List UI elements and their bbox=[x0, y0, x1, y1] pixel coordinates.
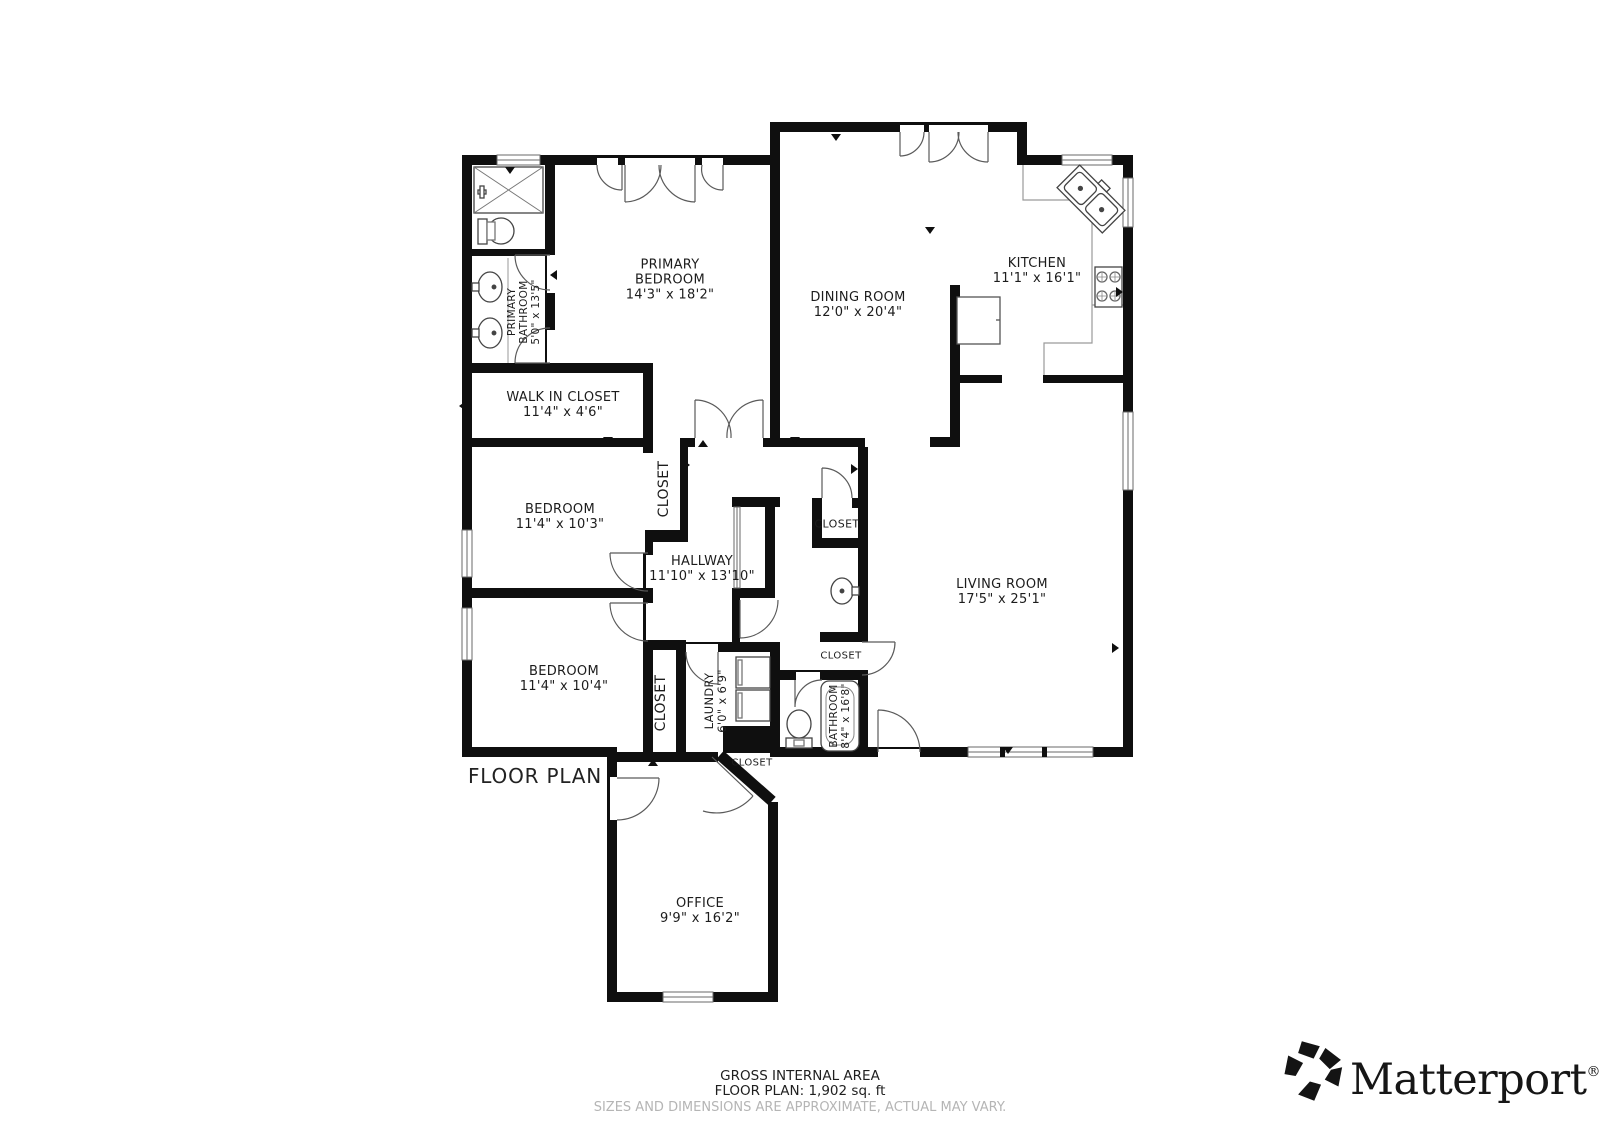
solid-block bbox=[723, 726, 772, 753]
room-dims: 11'1" x 16'1" bbox=[993, 271, 1082, 286]
double-vanity-icon bbox=[472, 258, 508, 363]
page-title: FLOOR PLAN bbox=[468, 764, 602, 788]
closet-label: CLOSET bbox=[656, 461, 672, 518]
room-dims: 14'3" x 18'2" bbox=[626, 288, 715, 303]
room-dims: 12'0" x 20'4" bbox=[810, 305, 905, 320]
window bbox=[462, 608, 472, 660]
floor-plan-area-value: FLOOR PLAN: 1,902 sq. ft bbox=[500, 1084, 1100, 1099]
window bbox=[663, 992, 713, 1002]
footer: GROSS INTERNAL AREA FLOOR PLAN: 1,902 sq… bbox=[500, 1069, 1100, 1115]
room-label-hallway: HALLWAY 11'10" x 13'10" bbox=[649, 554, 755, 584]
toilet-icon bbox=[786, 710, 812, 748]
closet-label: CLOSET bbox=[820, 651, 861, 662]
room-label-bedroom-1: BEDROOM 11'4" x 10'3" bbox=[516, 502, 605, 532]
room-dims: 11'4" x 4'6" bbox=[506, 405, 619, 420]
room-label-living-room: LIVING ROOM 17'5" x 25'1" bbox=[956, 577, 1048, 607]
closet-label: CLOSET bbox=[731, 758, 772, 769]
room-dims: 11'4" x 10'4" bbox=[520, 679, 609, 694]
window bbox=[1062, 155, 1112, 165]
room-dims: 9'9" x 16'2" bbox=[660, 911, 740, 926]
registered-mark: ® bbox=[1586, 1064, 1600, 1080]
disclaimer-text: SIZES AND DIMENSIONS ARE APPROXIMATE, AC… bbox=[500, 1100, 1100, 1115]
room-label-dining-room: DINING ROOM 12'0" x 20'4" bbox=[810, 290, 905, 320]
room-name: DINING ROOM bbox=[810, 290, 905, 305]
room-dims: 17'5" x 25'1" bbox=[956, 592, 1048, 607]
floor-plan-drawing bbox=[0, 0, 1600, 1132]
room-label-primary-bathroom: PRIMARY BATHROOM 5'0" x 13'5" bbox=[506, 279, 542, 344]
room-label-office: OFFICE 9'9" x 16'2" bbox=[660, 896, 740, 926]
room-name: BEDROOM bbox=[626, 273, 715, 288]
window bbox=[1123, 412, 1133, 490]
room-dims: 8'4" x 16'8" bbox=[840, 683, 852, 748]
room-name: BEDROOM bbox=[520, 664, 609, 679]
room-name: KITCHEN bbox=[993, 256, 1082, 271]
room-label-kitchen: KITCHEN 11'1" x 16'1" bbox=[993, 256, 1082, 286]
matterport-wordmark: Matterport® bbox=[1350, 1040, 1600, 1112]
room-name: PRIMARY bbox=[506, 279, 518, 344]
room-label-walk-in-closet: WALK IN CLOSET 11'4" x 4'6" bbox=[506, 390, 619, 420]
room-label-bathroom: BATHROOM 8'4" x 16'8" bbox=[828, 683, 852, 748]
washer-dryer-icon bbox=[736, 657, 770, 721]
sink-icon bbox=[831, 578, 859, 604]
room-name: BEDROOM bbox=[516, 502, 605, 517]
closet-label: CLOSET bbox=[814, 518, 859, 531]
room-name: BATHROOM bbox=[828, 683, 840, 748]
room-name: OFFICE bbox=[660, 896, 740, 911]
room-dims: 11'4" x 10'3" bbox=[516, 517, 605, 532]
toilet-icon bbox=[478, 218, 514, 244]
window bbox=[1123, 178, 1133, 227]
room-dims: 11'10" x 13'10" bbox=[649, 569, 755, 584]
matterport-logo: Matterport® bbox=[1282, 1038, 1572, 1108]
room-dims: 5'0" x 13'5" bbox=[530, 279, 542, 344]
window bbox=[968, 747, 1093, 757]
room-name: PRIMARY bbox=[626, 258, 715, 273]
brand-name: Matterport bbox=[1350, 1055, 1586, 1105]
room-dims: 6'0" x 6'9" bbox=[716, 669, 729, 733]
gross-internal-area-label: GROSS INTERNAL AREA bbox=[500, 1069, 1100, 1084]
room-name: WALK IN CLOSET bbox=[506, 390, 619, 405]
fixtures bbox=[472, 162, 1128, 751]
stove-icon bbox=[1095, 267, 1122, 307]
room-label-laundry: LAUNDRY 6'0" x 6'9" bbox=[703, 669, 729, 733]
walls bbox=[462, 122, 1133, 1002]
window bbox=[462, 530, 472, 577]
room-name: HALLWAY bbox=[649, 554, 755, 569]
room-label-primary-bedroom: PRIMARY BEDROOM 14'3" x 18'2" bbox=[626, 258, 715, 303]
fridge-icon bbox=[957, 297, 1000, 344]
floor-plan-page: PRIMARY BEDROOM 14'3" x 18'2" DINING ROO… bbox=[0, 0, 1600, 1132]
window bbox=[497, 155, 540, 165]
room-label-bedroom-2: BEDROOM 11'4" x 10'4" bbox=[520, 664, 609, 694]
shower-icon bbox=[474, 167, 543, 213]
room-name: LIVING ROOM bbox=[956, 577, 1048, 592]
room-name: BATHROOM bbox=[518, 279, 530, 344]
kitchen-sink-icon bbox=[1057, 162, 1128, 233]
closet-label: CLOSET bbox=[653, 675, 669, 732]
matterport-pinwheel-icon bbox=[1282, 1040, 1344, 1102]
